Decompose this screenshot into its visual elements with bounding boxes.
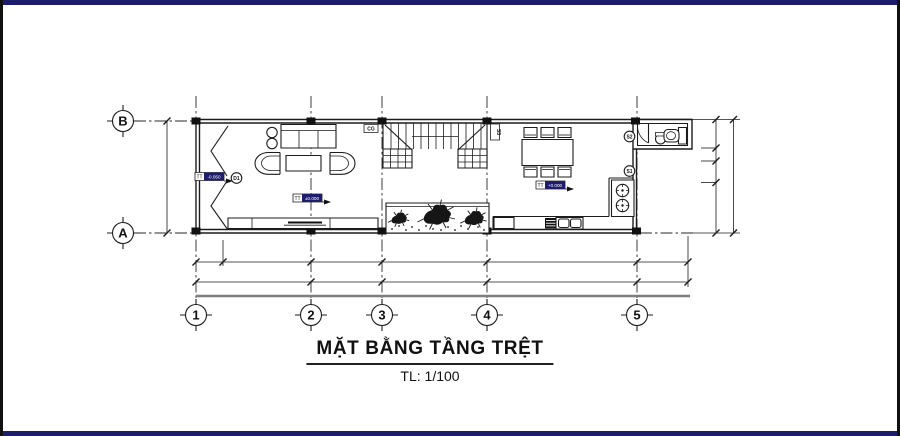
grid-bubble-row-B: B bbox=[107, 105, 139, 137]
tv-cabinet bbox=[228, 218, 378, 229]
grid-label-A: A bbox=[118, 226, 128, 241]
stair-landing-left bbox=[383, 149, 412, 168]
kitchen-cabinet bbox=[494, 218, 514, 229]
dining-set bbox=[522, 128, 573, 178]
window-tag-lower: S1 bbox=[624, 166, 635, 177]
grid-centerlines bbox=[134, 96, 694, 304]
stair-tag-right: S3 bbox=[491, 124, 502, 140]
side-stool bbox=[267, 138, 277, 148]
grid-bubble-col-4: 4 bbox=[471, 299, 503, 331]
window-tag-lower-label: S1 bbox=[626, 169, 632, 175]
level-dining-prefix: TT bbox=[537, 183, 543, 189]
stair-tag-right-label: S3 bbox=[495, 129, 501, 135]
grid-label-2: 2 bbox=[307, 308, 314, 323]
bottom-dimension-lines bbox=[193, 236, 692, 296]
level-living-prefix: TT bbox=[294, 196, 300, 202]
left-dimension-line bbox=[164, 118, 171, 237]
level-living-value: ±0.000 bbox=[305, 196, 319, 201]
grid-label-4: 4 bbox=[483, 308, 491, 323]
armchair-right bbox=[330, 153, 355, 175]
toilet bbox=[664, 128, 687, 145]
grid-label-5: 5 bbox=[633, 308, 640, 323]
grid-label-B: B bbox=[118, 114, 127, 129]
window-tag-upper-label: S2 bbox=[626, 135, 632, 141]
stair-tag-left-label: CG bbox=[367, 127, 375, 133]
entry-door-tag: D1 bbox=[231, 173, 242, 184]
grid-label-1: 1 bbox=[192, 308, 199, 323]
drawing-title: MẶT BẰNG TẦNG TRỆT bbox=[306, 338, 553, 365]
drawing-scale: TL: 1/100 bbox=[306, 368, 553, 384]
armchair-left bbox=[255, 153, 280, 175]
grid-bubble-col-3: 3 bbox=[366, 299, 398, 331]
stair-treads bbox=[391, 124, 481, 150]
level-entry-value: -0.050 bbox=[207, 174, 220, 179]
garden-planter bbox=[386, 200, 489, 234]
coffee-table bbox=[286, 156, 321, 172]
staircase: CG S3 bbox=[364, 123, 501, 168]
side-stool bbox=[267, 127, 277, 137]
level-dining-value: +0.000 bbox=[548, 183, 563, 188]
kitchen-sink bbox=[545, 218, 583, 230]
grid-bubble-col-2: 2 bbox=[295, 299, 327, 331]
living-room-furniture bbox=[228, 125, 378, 229]
drawing-title-block: MẶT BẰNG TẦNG TRỆT TL: 1/100 bbox=[306, 338, 553, 384]
level-marker-living: TT ±0.000 bbox=[293, 194, 331, 205]
level-marker-entry: TT -0.050 bbox=[195, 173, 233, 184]
drawing-sheet: CG S3 bbox=[0, 0, 900, 436]
grid-label-3: 3 bbox=[378, 308, 385, 323]
window-tag-upper: S2 bbox=[624, 131, 635, 142]
dining-table bbox=[522, 140, 573, 166]
sofa bbox=[281, 125, 336, 149]
right-dimension-lines bbox=[688, 116, 740, 237]
cooktop bbox=[612, 180, 635, 217]
grid-bubble-col-1: 1 bbox=[180, 299, 212, 331]
level-entry-prefix: TT bbox=[196, 175, 202, 181]
bathroom bbox=[633, 120, 692, 150]
grid-bubble-col-5: 5 bbox=[621, 299, 653, 331]
stair-landing-right bbox=[458, 149, 487, 168]
level-marker-dining: TT +0.000 bbox=[536, 181, 574, 192]
grid-bubble-row-A: A bbox=[107, 217, 139, 249]
stair-tag-left: CG bbox=[364, 125, 378, 133]
entry-door-tag-label: D1 bbox=[233, 176, 240, 182]
